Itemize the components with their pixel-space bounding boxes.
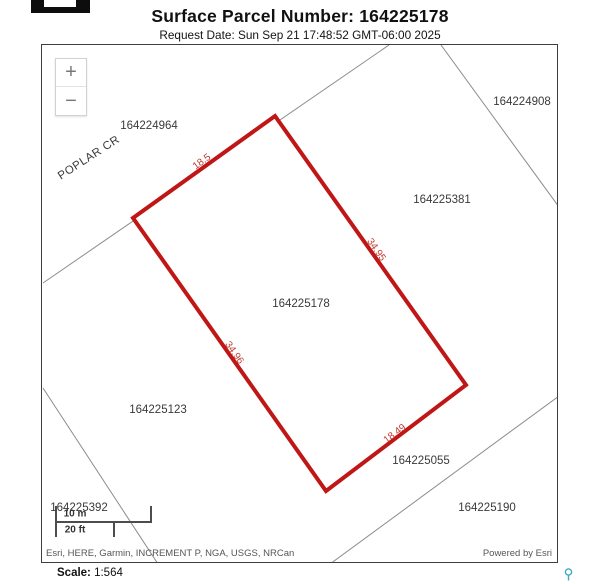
map-pin-icon <box>563 568 574 582</box>
attribution: Esri, HERE, Garmin, INCREMENT P, NGA, US… <box>46 548 294 559</box>
zoom-out-button[interactable]: − <box>56 87 86 115</box>
minus-icon: − <box>65 90 77 113</box>
scale-bar-imperial-label: 20 ft <box>65 525 86 536</box>
parcel-label: 164225190 <box>458 502 516 514</box>
scale-value: 1:564 <box>94 567 123 579</box>
scale-bar-metric-label: 10 m <box>64 509 87 520</box>
parcel-label: 164224964 <box>120 120 178 132</box>
scale-label: Scale: <box>57 567 91 579</box>
powered-by-esri: Powered by Esri <box>483 548 552 559</box>
request-date: Request Date: Sun Sep 21 17:48:52 GMT-06… <box>0 28 600 42</box>
parcel-label: 164225123 <box>129 404 187 416</box>
map-viewport[interactable]: POPLAR CR 164224964 164224908 164225381 … <box>41 44 558 563</box>
plus-icon: + <box>65 61 77 84</box>
zoom-in-button[interactable]: + <box>56 59 86 87</box>
zoom-control: + − <box>55 58 87 116</box>
parcel-label-selected: 164225178 <box>272 298 330 310</box>
parcel-label: 164225381 <box>413 194 471 206</box>
parcel-label: 164225055 <box>392 455 450 467</box>
parcel-label: 164224908 <box>493 96 551 108</box>
scale-note: Scale: 1:564 <box>57 567 123 579</box>
page-title: Surface Parcel Number: 164225178 <box>0 6 600 27</box>
